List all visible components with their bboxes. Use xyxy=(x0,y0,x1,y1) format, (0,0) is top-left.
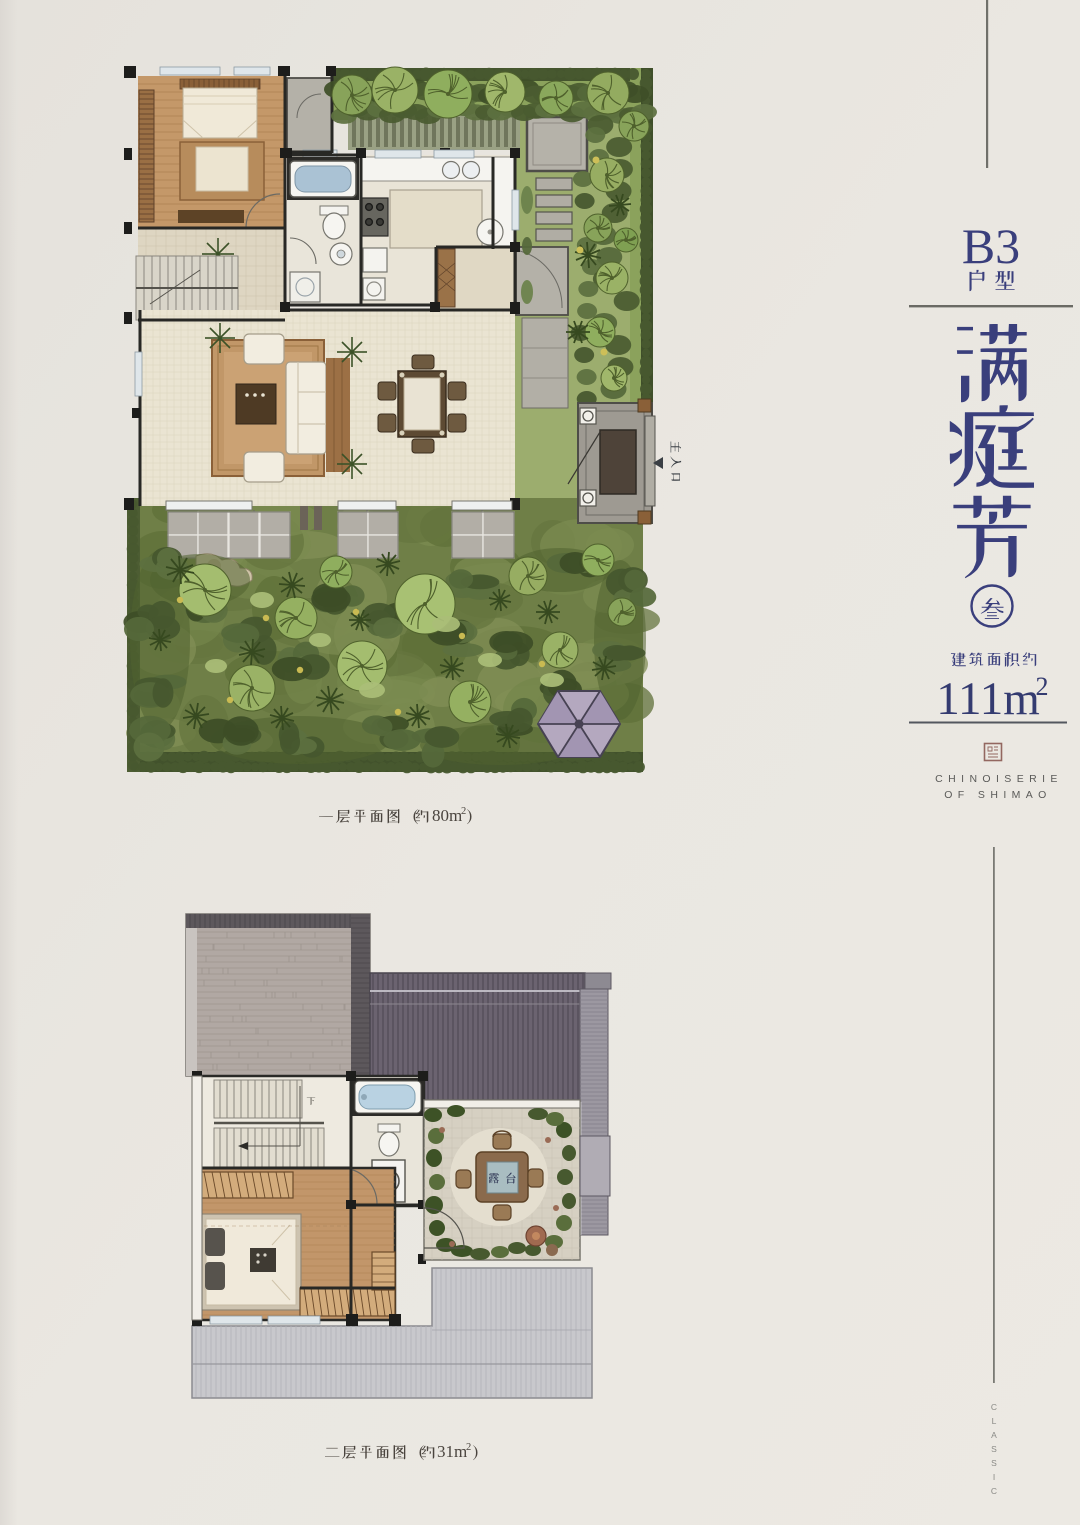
svg-text:S: S xyxy=(991,1444,997,1454)
svg-text:C: C xyxy=(991,1402,997,1412)
svg-text:I: I xyxy=(993,1472,995,1482)
svg-text:2: 2 xyxy=(466,1442,471,1453)
svg-text:31m: 31m xyxy=(437,1442,467,1461)
svg-text:111m: 111m xyxy=(936,673,1040,725)
svg-text:80m: 80m xyxy=(432,806,462,825)
svg-text:C: C xyxy=(991,1486,997,1496)
svg-text:A: A xyxy=(991,1430,997,1440)
svg-text:CHINOISERIE: CHINOISERIE xyxy=(935,773,1063,785)
svg-text:2: 2 xyxy=(1036,672,1049,701)
svg-text:2: 2 xyxy=(461,806,466,817)
svg-text:B3: B3 xyxy=(962,218,1020,274)
svg-text:OF SHIMAO: OF SHIMAO xyxy=(944,789,1052,801)
svg-text:L: L xyxy=(992,1416,997,1426)
svg-text:S: S xyxy=(991,1458,997,1468)
